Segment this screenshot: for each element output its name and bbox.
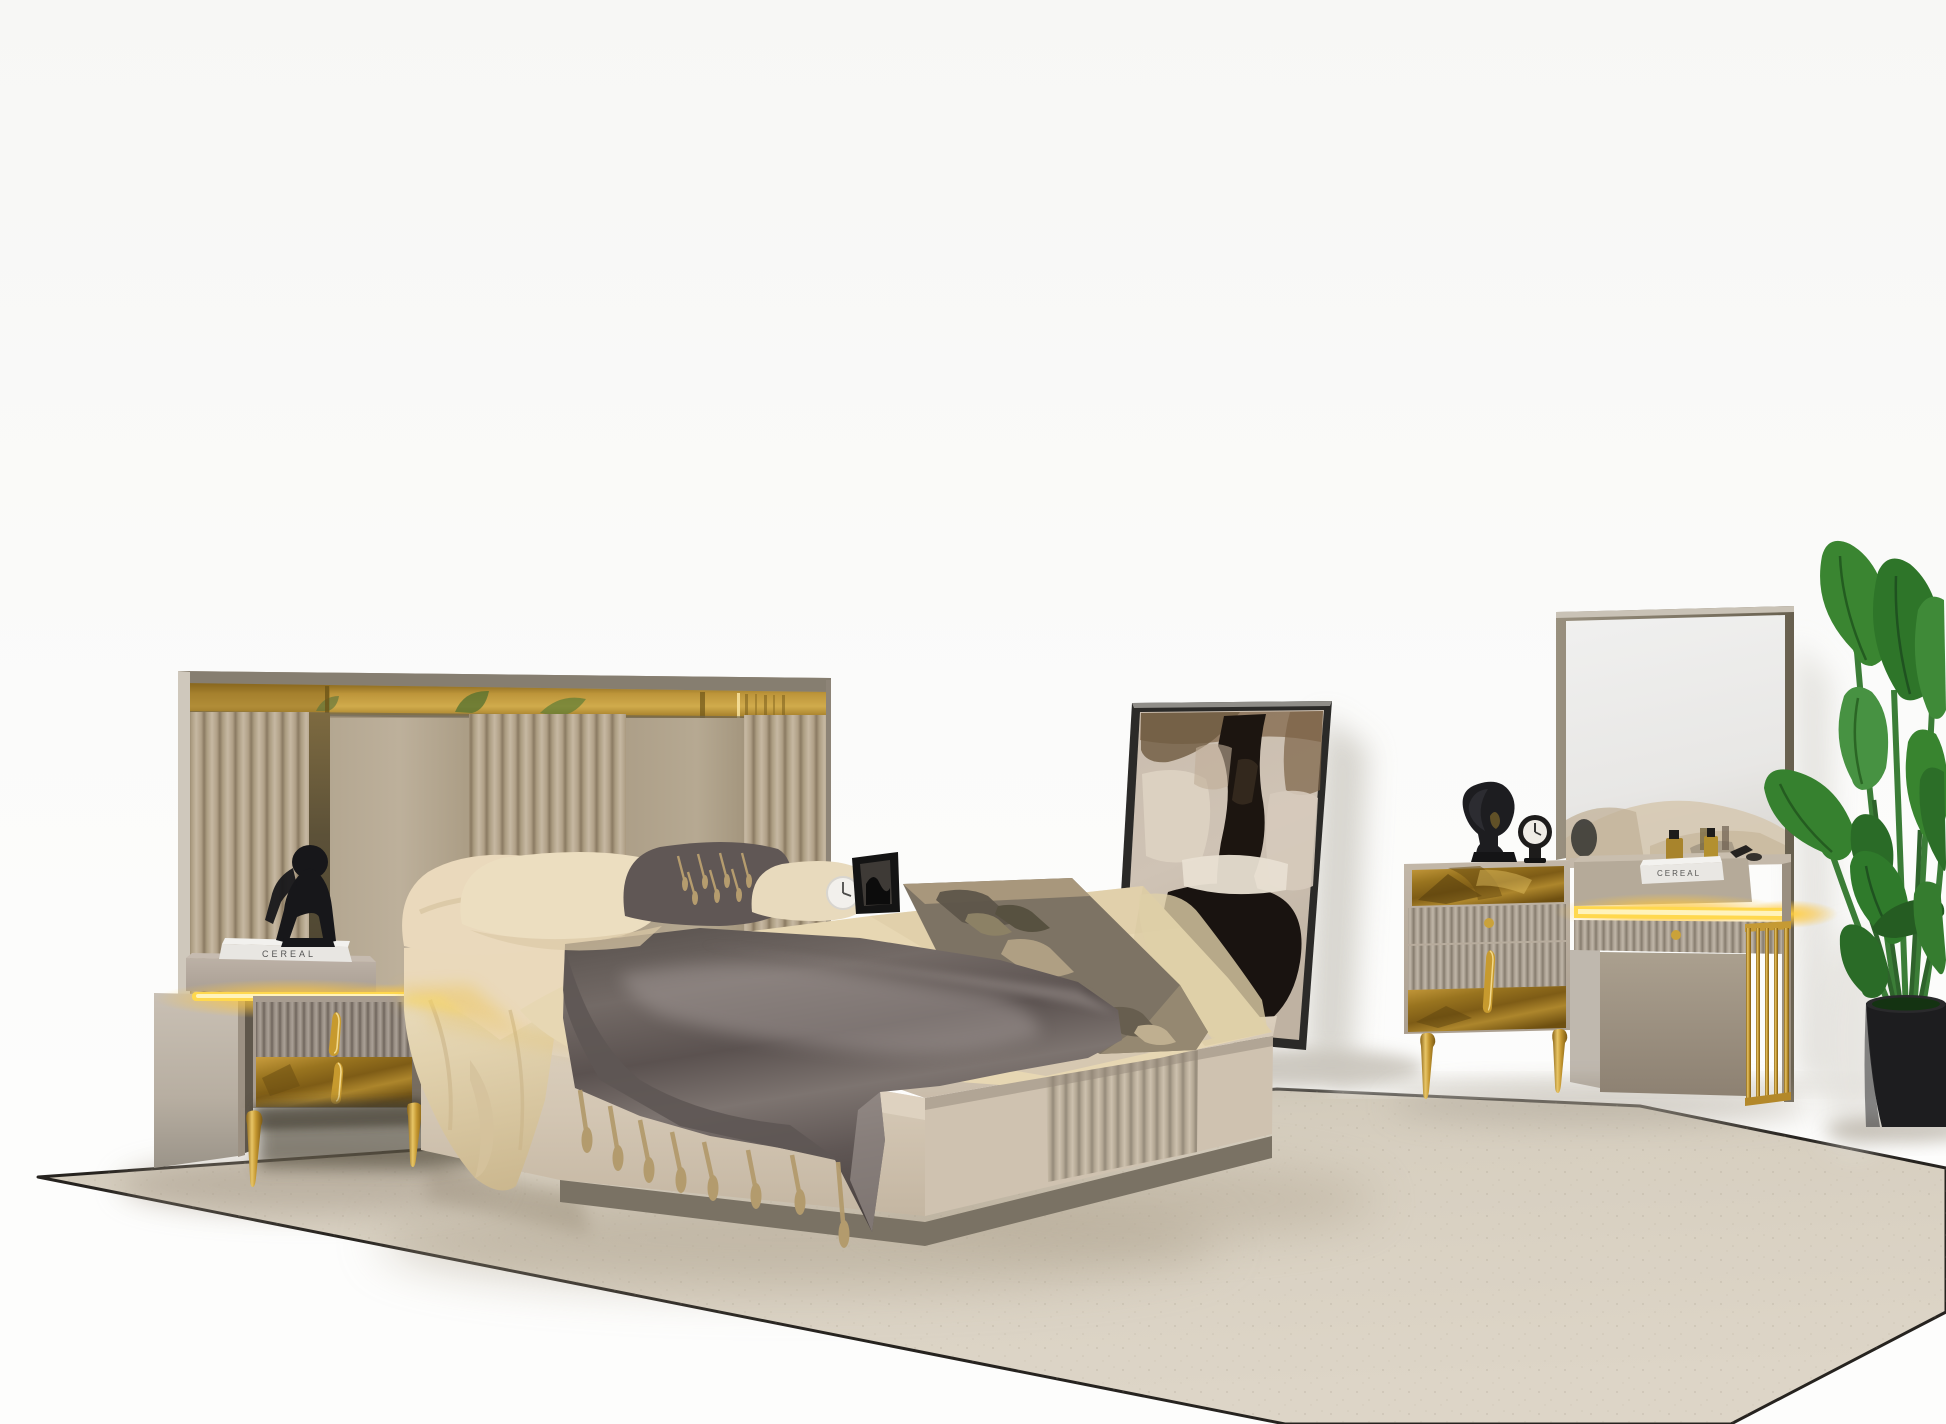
svg-text:CEREAL: CEREAL — [262, 949, 316, 959]
svg-text:CEREAL: CEREAL — [1657, 869, 1701, 878]
